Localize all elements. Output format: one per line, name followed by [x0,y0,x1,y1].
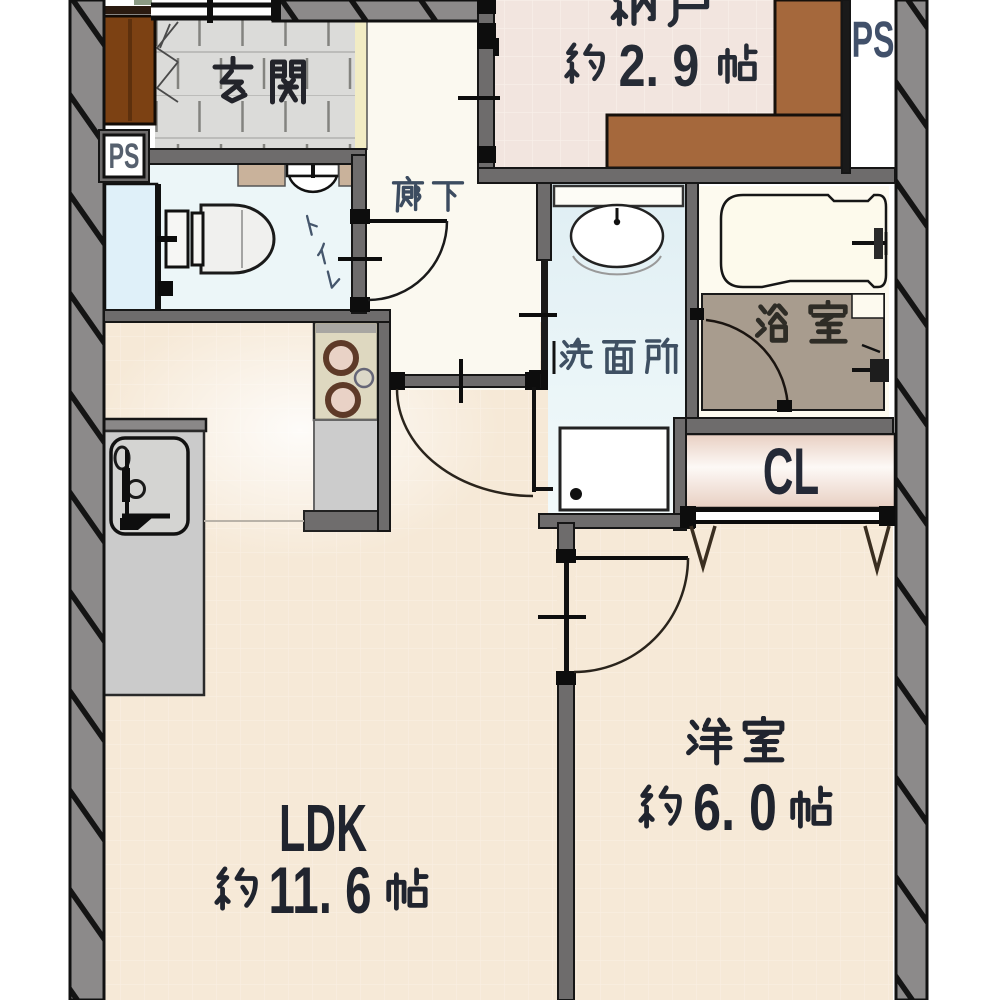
svg-text:11. 6: 11. 6 [268,854,371,927]
svg-text:PS: PS [109,137,140,176]
svg-text:PS: PS [852,12,895,69]
svg-text:CL: CL [763,434,819,508]
svg-text:6. 0: 6. 0 [693,771,777,844]
svg-text:2. 9: 2. 9 [619,34,700,100]
